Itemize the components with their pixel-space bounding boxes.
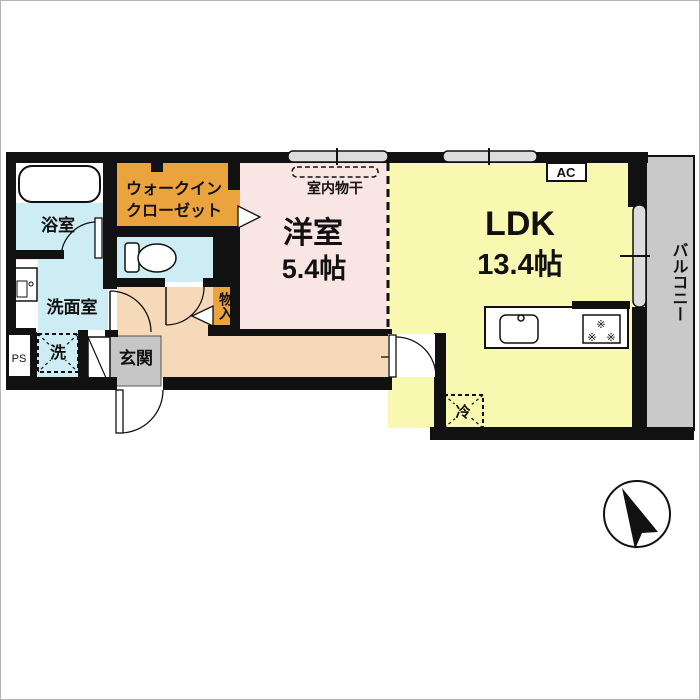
burner-icon: ※ — [587, 332, 596, 344]
wall-entrance-left — [78, 330, 88, 390]
burner-icon: ※ — [606, 332, 615, 344]
wall-right-bottom — [632, 307, 646, 428]
wall-bath-right — [103, 152, 117, 289]
vanity-basin-icon — [17, 281, 27, 297]
floor-plan-image: ※ ※ ※ — [0, 0, 700, 700]
washer-label: 洗 — [50, 343, 66, 362]
western-room-name: 洋室 — [283, 216, 343, 250]
wall-closet-bottom — [108, 226, 240, 237]
north-arrow-icon — [604, 481, 670, 549]
entrance-door-leaf — [116, 390, 123, 433]
floor-plan-svg: ※ ※ ※ — [0, 0, 700, 700]
wall-kitchen-hood — [572, 301, 630, 309]
walk-in-closet-label-line2: クローゼット — [126, 201, 222, 220]
ldk-name: LDK — [485, 205, 555, 243]
burner-icon: ※ — [596, 319, 605, 331]
kitchen-faucet-icon — [518, 315, 524, 321]
bathtub-icon — [19, 166, 100, 202]
wall-bottom-left-a — [6, 377, 117, 390]
walk-in-closet-label-line1: ウォークイン — [126, 180, 222, 198]
refrigerator-label: 冷 — [455, 403, 470, 421]
ldk-floor — [388, 163, 634, 428]
wall-closet-right — [228, 158, 240, 190]
entrance-label: 玄関 — [119, 348, 153, 368]
toilet-bowl-icon — [138, 244, 176, 272]
pipe-space-label: PS — [12, 353, 27, 365]
wall-bath-divider — [6, 250, 64, 259]
wall-right-top — [628, 152, 645, 207]
hall-corridor-floor — [160, 336, 388, 378]
western-room-size: 5.4帖 — [282, 254, 347, 284]
wall-bottom-left-b — [163, 377, 392, 390]
wall-washroom-stub — [105, 330, 118, 337]
washroom-label: 洗面室 — [47, 297, 98, 317]
storage-label: 物入 — [218, 291, 234, 320]
indoor-drying-label: 室内物干 — [307, 180, 363, 196]
ldk-door-leaf — [389, 335, 396, 377]
toilet-tank-icon — [125, 243, 139, 272]
balcony-label: バルコニー — [670, 242, 689, 322]
ac-label: AC — [557, 165, 576, 180]
ldk-size: 13.4帖 — [477, 248, 562, 281]
wall-toilet-bottom-a — [117, 278, 165, 287]
bath-label: 浴室 — [41, 215, 75, 235]
wall-corridor-top — [210, 329, 392, 336]
bath-door-leaf — [95, 218, 102, 258]
wall-closet-notch — [151, 163, 163, 172]
wall-toilet-bottom-b — [203, 278, 230, 287]
vanity-faucet-icon — [29, 282, 33, 286]
hall-floor-front — [117, 287, 213, 336]
